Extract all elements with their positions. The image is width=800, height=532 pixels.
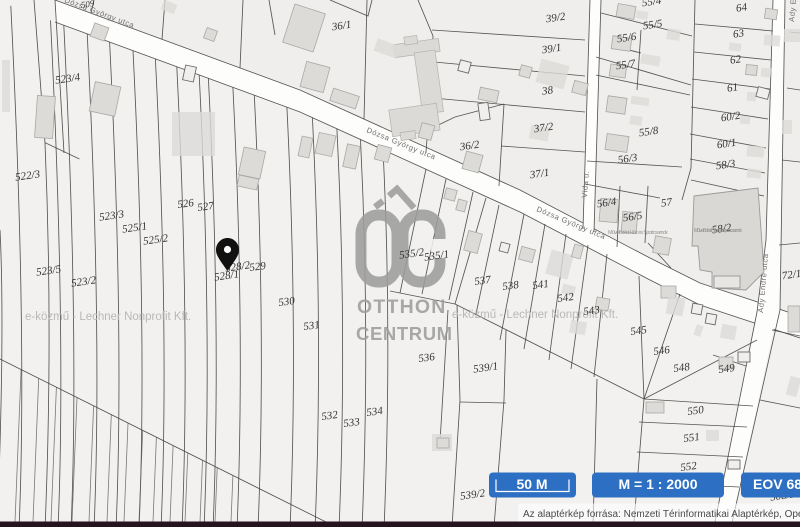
svg-text:534: 534: [366, 405, 385, 419]
svg-text:551: 551: [683, 431, 701, 445]
svg-text:64: 64: [735, 1, 748, 14]
svg-text:548: 548: [673, 361, 692, 375]
svg-text:541: 541: [532, 278, 550, 292]
svg-text:538: 538: [502, 279, 521, 293]
svg-text:62: 62: [729, 53, 742, 66]
svg-text:Vida u.: Vida u.: [580, 170, 591, 198]
svg-text:M = 1 : 2000: M = 1 : 2000: [619, 476, 698, 492]
svg-text:532: 532: [321, 409, 340, 423]
svg-text:Az alaptérkép forrása: Nemzeti: Az alaptérkép forrása: Nemzeti Térinform…: [523, 509, 800, 520]
svg-text:549: 549: [718, 362, 737, 376]
svg-text:533: 533: [343, 416, 362, 430]
svg-text:537: 537: [474, 274, 493, 288]
svg-text:527: 527: [197, 200, 216, 214]
svg-text:543: 543: [583, 304, 602, 318]
svg-text:Művelődési Ház és Sportcsarnok: Művelődési Ház és Sportcsarnok: [608, 230, 668, 236]
svg-text:531: 531: [303, 319, 321, 333]
svg-text:545: 545: [630, 324, 649, 338]
svg-text:542: 542: [557, 291, 576, 305]
svg-text:552: 552: [680, 460, 699, 474]
svg-text:CENTRUM: CENTRUM: [356, 323, 453, 344]
svg-text:61: 61: [726, 81, 739, 94]
svg-text:Művelődési Ház és Sportcsarnok: Művelődési Ház és Sportcsarnok: [694, 228, 743, 234]
svg-text:63: 63: [732, 27, 745, 40]
svg-text:550: 550: [687, 404, 706, 418]
svg-text:529: 529: [249, 260, 268, 274]
svg-text:e-közmű - Lechner Nonprofit Kf: e-közmű - Lechner Nonprofit Kft.: [25, 311, 191, 323]
svg-text:526: 526: [177, 197, 196, 211]
svg-text:72/1: 72/1: [781, 268, 800, 283]
svg-text:546: 546: [653, 344, 672, 358]
svg-text:EOV 687: EOV 687: [753, 476, 800, 492]
svg-text:57: 57: [660, 196, 673, 209]
svg-text:OTTHON: OTTHON: [357, 296, 447, 318]
svg-text:536: 536: [418, 351, 437, 365]
svg-text:50 M: 50 M: [516, 476, 547, 492]
svg-text:530: 530: [278, 295, 297, 309]
svg-text:38: 38: [540, 84, 554, 98]
